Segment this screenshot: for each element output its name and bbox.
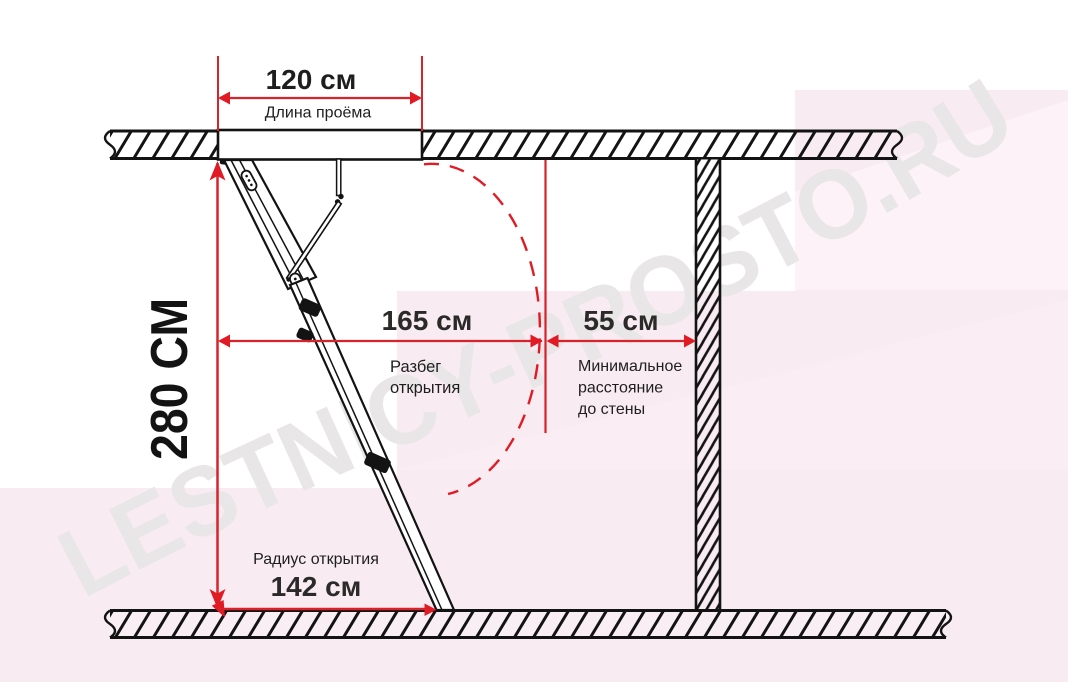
svg-text:расстояние: расстояние xyxy=(578,380,663,397)
svg-text:142 см: 142 см xyxy=(271,571,362,602)
svg-text:120 см: 120 см xyxy=(266,64,357,95)
svg-text:открытия: открытия xyxy=(390,379,460,397)
svg-text:до стены: до стены xyxy=(578,401,645,418)
svg-text:280 СМ: 280 СМ xyxy=(141,298,199,460)
svg-text:165 см: 165 см xyxy=(382,305,473,336)
svg-text:Радиус открытия: Радиус открытия xyxy=(253,551,379,568)
svg-text:Минимальное: Минимальное xyxy=(578,358,682,375)
svg-text:55 см: 55 см xyxy=(583,305,658,336)
svg-text:Разбег: Разбег xyxy=(390,358,441,376)
svg-text:Длина проёма: Длина проёма xyxy=(265,105,372,122)
